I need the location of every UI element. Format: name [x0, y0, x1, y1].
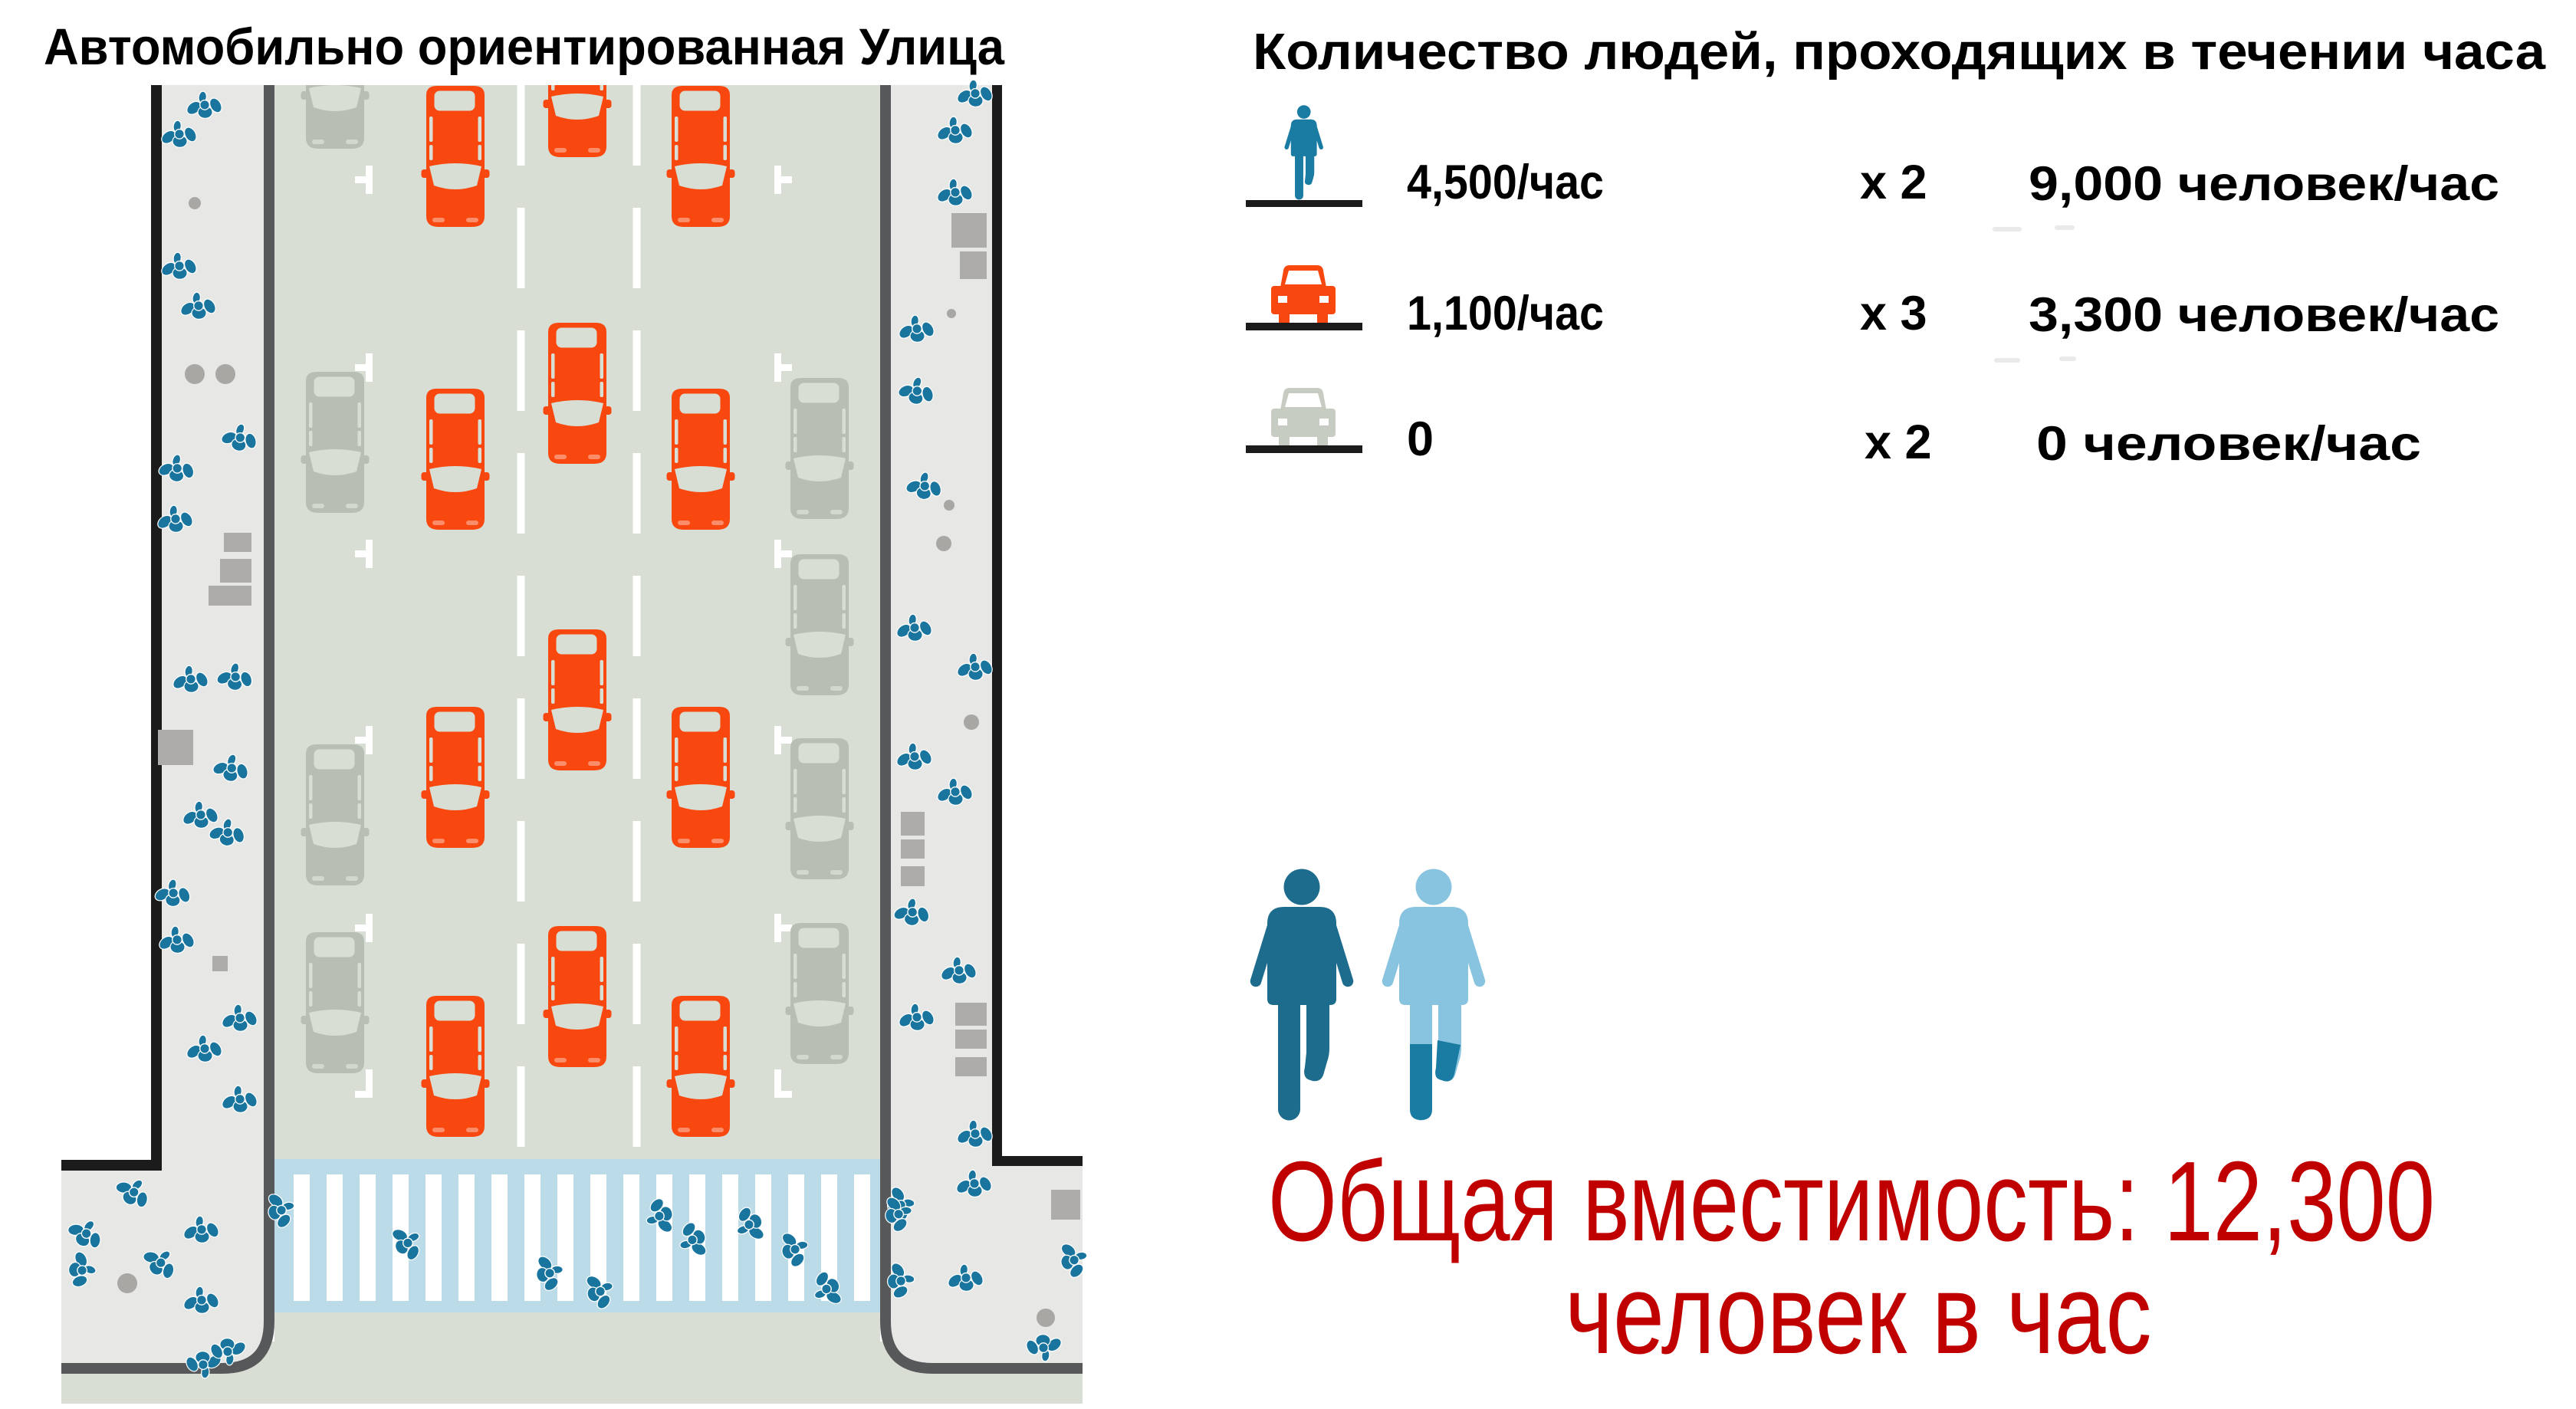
svg-text:Общая вместимость: 12,300: Общая вместимость: 12,300 [1268, 1138, 2435, 1265]
svg-text:4,500/час: 4,500/час [1407, 156, 1604, 209]
svg-text:Количество людей, проходящих в: Количество людей, проходящих в течении ч… [1253, 23, 2546, 80]
svg-text:Автомобильно ориентированная У: Автомобильно ориентированная Улица [44, 18, 1005, 76]
svg-text:человек в час: человек в час [1566, 1251, 2152, 1378]
svg-text:0 человек/час: 0 человек/час [2036, 417, 2421, 471]
svg-text:9,000 человек/час: 9,000 человек/час [2029, 157, 2499, 211]
svg-text:x 2: x 2 [1860, 156, 1927, 209]
svg-text:x 2: x 2 [1865, 415, 1932, 469]
svg-text:1,100/час: 1,100/час [1407, 287, 1604, 340]
svg-text:0: 0 [1407, 412, 1434, 466]
svg-text:3,300 человек/час: 3,300 человек/час [2029, 288, 2499, 342]
svg-text:x 3: x 3 [1860, 287, 1927, 340]
